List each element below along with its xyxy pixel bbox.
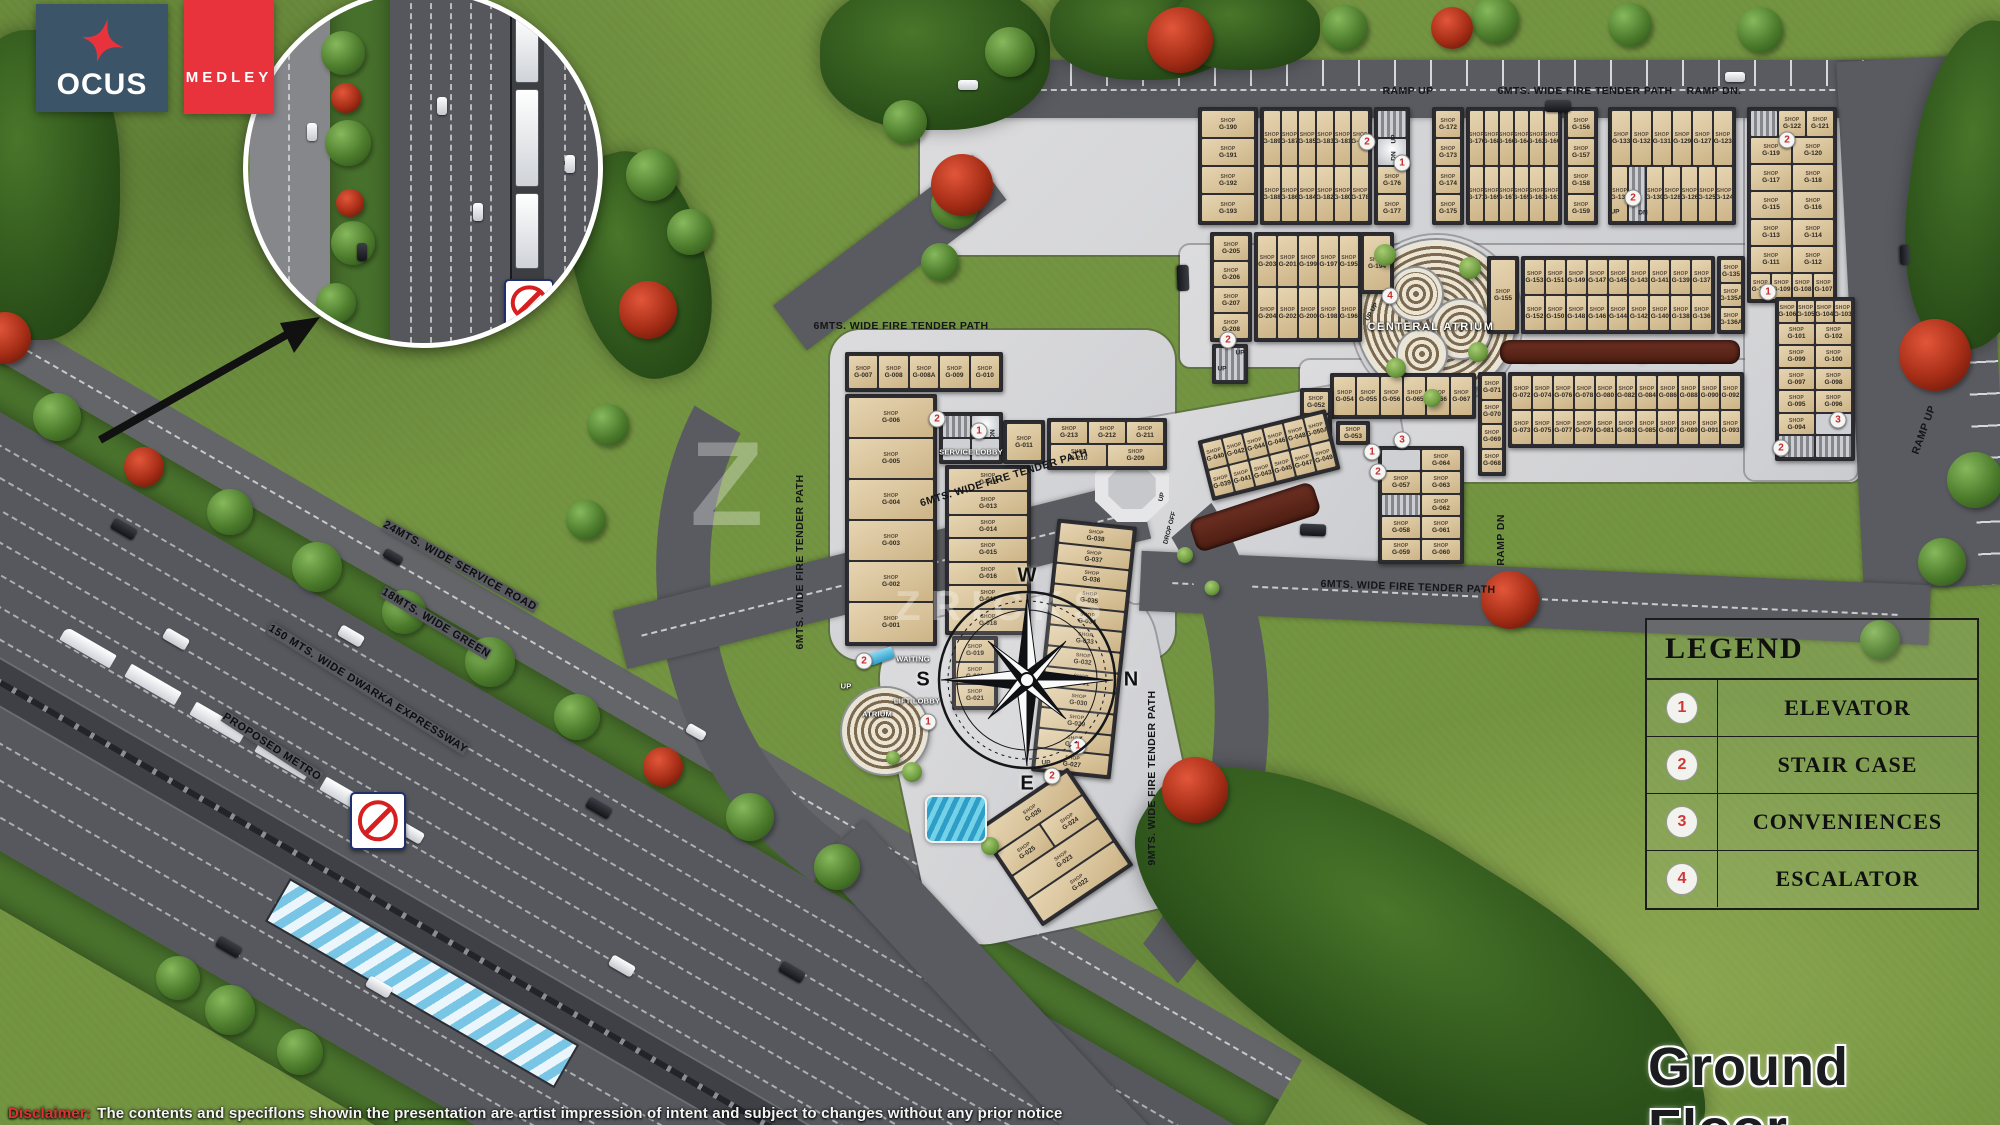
shop-g-187: SHOPG-187: [1282, 111, 1298, 165]
swimming-pool: [925, 795, 987, 843]
shop-g-132: SHOPG-132: [1632, 111, 1650, 165]
tree: [205, 985, 255, 1035]
shop-g-072: SHOPG-072: [1512, 376, 1531, 409]
marker-staircase: 2: [1779, 132, 1796, 149]
shop-g-069: SHOPG-069: [1482, 425, 1502, 448]
shop-g-206: SHOPG-206: [1214, 262, 1248, 286]
shop-block: SHOPG-190SHOPG-191SHOPG-192SHOPG-193: [1198, 107, 1258, 225]
shop-g-061: SHOPG-061: [1422, 517, 1460, 537]
tree: [1205, 581, 1220, 596]
shop-g-183: SHOPG-183: [1317, 111, 1333, 165]
shop-g-010: SHOPG-010: [971, 356, 999, 388]
tree: [566, 500, 606, 540]
shop-g-075: SHOPG-075: [1533, 411, 1552, 444]
shop-g-131: SHOPG-131: [1653, 111, 1671, 165]
shop-g-197: SHOPG-197: [1319, 236, 1337, 286]
shop-g-050a: SHOPG-050A: [1304, 414, 1329, 444]
shop-g-003: SHOPG-003: [849, 521, 933, 560]
shop-g-096: SHOPG-096: [1816, 391, 1851, 412]
label-centeral-atrium: CENTERAL ATRIUM: [1368, 321, 1495, 333]
label-up: UP: [1217, 366, 1226, 373]
compass-west: W: [1018, 565, 1037, 588]
shop-g-156: SHOPG-156: [1568, 111, 1594, 137]
compass-rose: W N E S: [917, 570, 1137, 790]
shop-g-123: SHOPG-123: [1714, 111, 1732, 165]
shop-g-070: SHOPG-070: [1482, 401, 1502, 424]
tree: [587, 404, 629, 446]
shop-g-098: SHOPG-098: [1816, 369, 1851, 390]
legend-label: CONVENIENCES: [1718, 794, 1977, 850]
flowering-tree: [1431, 7, 1473, 49]
label-6mts-wide-fire-tender-path: 6MTS. WIDE FIRE TENDER PATH: [814, 320, 989, 332]
inset-car: [307, 123, 317, 141]
label-atrium: ATRIUM: [862, 710, 892, 719]
tree: [1471, 0, 1519, 44]
shop-g-129: SHOPG-129: [1673, 111, 1691, 165]
shop-g-125: SHOPG-125: [1699, 167, 1714, 221]
tree: [726, 793, 774, 841]
shop-g-049: SHOPG-049: [1311, 441, 1336, 471]
label-dn: DN: [1638, 210, 1647, 217]
shop-g-108: SHOPG-108: [1793, 274, 1812, 299]
legend-title: LEGEND: [1647, 620, 1977, 680]
shop-g-212: SHOPG-212: [1089, 422, 1125, 443]
tree: [1177, 547, 1193, 563]
label-service-lobby: SERVICE LOBBY: [939, 448, 1003, 457]
shop-g-126: SHOPG-126: [1682, 167, 1697, 221]
shop-g-067: SHOPG-067: [1451, 377, 1472, 415]
shop-block: SHOPG-170SHOPG-168SHOPG-166SHOPG-164SHOP…: [1466, 107, 1562, 225]
shop-g-167: SHOPG-167: [1500, 167, 1513, 221]
marker-staircase: 2: [929, 411, 946, 428]
inset-tree: [331, 83, 361, 113]
shop-g-136a: SHOPG-136A: [1721, 308, 1741, 330]
flowering-tree: [931, 154, 993, 216]
car: [958, 80, 978, 90]
shop-g-009: SHOPG-009: [940, 356, 968, 388]
car: [1300, 524, 1326, 537]
tree: [985, 27, 1035, 77]
shop-g-186: SHOPG-186: [1282, 167, 1298, 221]
shop-g-185: SHOPG-185: [1299, 111, 1315, 165]
shop-g-136: SHOPG-136: [1692, 296, 1711, 330]
shop-g-076: SHOPG-076: [1554, 376, 1573, 409]
shop-g-082: SHOPG-082: [1617, 376, 1636, 409]
planter-court: [1500, 340, 1740, 364]
shop-g-053: SHOPG-053: [1340, 425, 1366, 441]
label-dn: DN: [990, 429, 997, 438]
tree: [1423, 389, 1441, 407]
shop-g-161: SHOPG-161: [1545, 167, 1558, 221]
compass-east: E: [1020, 773, 1033, 796]
legend-row-conveniences: 3CONVENIENCES: [1647, 794, 1977, 851]
shop-g-207: SHOPG-207: [1214, 288, 1248, 312]
disclaimer-text: The contents and speciflons showin the p…: [97, 1105, 1063, 1122]
shop-g-087: SHOPG-087: [1658, 411, 1677, 444]
shop-g-178: SHOPG-178: [1352, 167, 1368, 221]
shop-g-097: SHOPG-097: [1779, 369, 1814, 390]
shop-g-175: SHOPG-175: [1436, 195, 1460, 221]
shop-g-059: SHOPG-059: [1382, 540, 1420, 560]
shop-block: SHOPG-205SHOPG-206SHOPG-207SHOPG-208: [1210, 232, 1252, 342]
legend-label: ELEVATOR: [1718, 680, 1977, 736]
shop-block: SHOPG-153SHOPG-151SHOPG-149SHOPG-147SHOP…: [1521, 256, 1715, 334]
shop-g-081: SHOPG-081: [1596, 411, 1615, 444]
page-title: Ground Floor: [1648, 1036, 2000, 1125]
shop-g-116: SHOPG-116: [1793, 192, 1833, 217]
shop-g-138: SHOPG-138: [1671, 296, 1690, 330]
legend-marker-3: 3: [1666, 806, 1698, 838]
shop-g-198: SHOPG-198: [1319, 288, 1337, 338]
shop-g-102: SHOPG-102: [1816, 324, 1851, 345]
tree: [626, 149, 678, 201]
shop-g-139: SHOPG-139: [1671, 260, 1690, 294]
shop-g-152: SHOPG-152: [1525, 296, 1544, 330]
shop-g-056: SHOPG-056: [1381, 377, 1402, 415]
shop-g-114: SHOPG-114: [1793, 220, 1833, 245]
label-6mts-wide-fire-tender-path: 6MTS. WIDE FIRE TENDER PATH: [1498, 85, 1673, 97]
marker-conveniences: 3: [1394, 432, 1411, 449]
legend-label: STAIR CASE: [1718, 737, 1977, 793]
legend: LEGEND 1ELEVATOR2STAIR CASE3CONVENIENCES…: [1645, 618, 1979, 910]
shop-g-092: SHOPG-092: [1721, 376, 1740, 409]
metro-train: [515, 15, 539, 83]
marker-staircase: 2: [1370, 464, 1387, 481]
shop-g-120: SHOPG-120: [1793, 138, 1833, 163]
medley-wordmark: MEDLEY: [186, 69, 273, 86]
shop-g-071: SHOPG-071: [1482, 376, 1502, 399]
marker-elevator: 1: [1760, 284, 1777, 301]
shop-g-112: SHOPG-112: [1793, 247, 1833, 272]
shop-block: SHOPG-054SHOPG-055SHOPG-056SHOPG-065SHOP…: [1330, 373, 1476, 419]
shop-g-163: SHOPG-163: [1530, 167, 1543, 221]
tree: [1608, 3, 1652, 47]
shop-g-159: SHOPG-159: [1568, 195, 1594, 221]
staircase-cell: [1816, 436, 1851, 457]
label-6mts-wide-fire-tender-path: 6MTS. WIDE FIRE TENDER PATH: [794, 475, 806, 650]
staircase-cell: [1378, 111, 1406, 137]
tree: [156, 956, 200, 1000]
shop-g-196: SHOPG-196: [1340, 288, 1358, 338]
marker-elevator: 1: [1394, 155, 1411, 172]
shop-g-133: SHOPG-133: [1612, 111, 1630, 165]
shop-g-077: SHOPG-077: [1554, 411, 1573, 444]
ocus-logo: OCUS: [36, 4, 168, 112]
shop-g-008a: SHOPG-008A: [910, 356, 938, 388]
tree: [277, 1029, 323, 1075]
tree: [33, 393, 81, 441]
shop-g-074: SHOPG-074: [1533, 376, 1552, 409]
shop-g-174: SHOPG-174: [1436, 167, 1460, 193]
shop-g-007: SHOPG-007: [849, 356, 877, 388]
shop-g-090: SHOPG-090: [1700, 376, 1719, 409]
shop-g-085: SHOPG-085: [1637, 411, 1656, 444]
shop-g-150: SHOPG-150: [1546, 296, 1565, 330]
tree: [1322, 5, 1368, 51]
shop-block: SHOPG-106SHOPG-105SHOPG-104SHOPG-103SHOP…: [1775, 297, 1855, 461]
shop-g-060: SHOPG-060: [1422, 540, 1460, 560]
shop-g-190: SHOPG-190: [1202, 111, 1254, 137]
shop-g-145: SHOPG-145: [1609, 260, 1628, 294]
legend-marker-4: 4: [1666, 863, 1698, 895]
shop-g-005: SHOPG-005: [849, 439, 933, 478]
disclaimer-label: Disclaimer:: [8, 1105, 91, 1122]
label-9mts-wide-fire-tender-path: 9MTS. WIDE FIRE TENDER PATH: [1146, 691, 1158, 866]
ocus-wordmark: OCUS: [57, 68, 148, 102]
site-plan-poster: 150 MTS. WIDE DWARKA EXPRESSWAY OCUS MED…: [0, 0, 2000, 1125]
shop-g-121: SHOPG-121: [1807, 111, 1833, 136]
shop-g-147: SHOPG-147: [1588, 260, 1607, 294]
legend-marker-2: 2: [1666, 749, 1698, 781]
shop-block: SHOPG-203SHOPG-201SHOPG-199SHOPG-197SHOP…: [1254, 232, 1362, 342]
label-ramp-dn: RAMP DN.: [1687, 85, 1742, 97]
shop-g-171: SHOPG-171: [1470, 167, 1483, 221]
shop-g-111: SHOPG-111: [1751, 247, 1791, 272]
shop-g-153: SHOPG-153: [1525, 260, 1544, 294]
flowering-tree: [1899, 319, 1971, 391]
tree: [1386, 358, 1406, 378]
shop-g-155: SHOPG-155: [1491, 260, 1515, 330]
shop-g-211: SHOPG-211: [1127, 422, 1163, 443]
shop-block: SHOPG-007SHOPG-008SHOPG-008ASHOPG-009SHO…: [845, 352, 1003, 392]
shop-block: SHOPG-172SHOPG-173SHOPG-174SHOPG-175: [1432, 107, 1464, 225]
shop-g-103: SHOPG-103: [1835, 301, 1852, 322]
marker-staircase: 2: [1359, 134, 1376, 151]
label-up: UP: [841, 682, 852, 691]
shop-g-124: SHOPG-124: [1717, 167, 1732, 221]
tree: [1737, 7, 1783, 53]
tree: [921, 243, 959, 281]
flowering-tree: [1162, 757, 1228, 823]
shop-g-091: SHOPG-091: [1700, 411, 1719, 444]
shop-g-203: SHOPG-203: [1258, 236, 1276, 286]
flowering-tree: [1481, 571, 1539, 629]
flowering-tree: [619, 281, 677, 339]
inset-expressway-detail: 150 MTS. WIDE DWARKA EXPRESSWAY: [243, 0, 603, 348]
shop-g-089: SHOPG-089: [1679, 411, 1698, 444]
shop-g-213: SHOPG-213: [1051, 422, 1087, 443]
shop-g-006: SHOPG-006: [849, 398, 933, 437]
car: [1725, 72, 1745, 82]
shop-g-143: SHOPG-143: [1629, 260, 1648, 294]
shop-g-140: SHOPG-140: [1650, 296, 1669, 330]
tree: [886, 751, 900, 765]
shop-g-137: SHOPG-137: [1692, 260, 1711, 294]
shop-g-127: SHOPG-127: [1693, 111, 1711, 165]
shop-g-073: SHOPG-073: [1512, 411, 1531, 444]
shop-g-158: SHOPG-158: [1568, 167, 1594, 193]
tree: [1459, 257, 1481, 279]
utility-cell: [1382, 450, 1420, 470]
shop-g-095: SHOPG-095: [1779, 391, 1814, 412]
label-up: UP: [1235, 350, 1244, 357]
shop-g-144: SHOPG-144: [1609, 296, 1628, 330]
shop-block: SHOPG-189SHOPG-187SHOPG-185SHOPG-183SHOP…: [1260, 107, 1372, 225]
marker-staircase: 2: [1773, 440, 1790, 457]
shop-g-105: SHOPG-105: [1798, 301, 1815, 322]
marker-elevator: 1: [1364, 444, 1381, 461]
shop-g-118: SHOPG-118: [1793, 165, 1833, 190]
metro-train: [515, 89, 539, 187]
shop-block: SHOPG-071SHOPG-070SHOPG-069SHOPG-068: [1478, 372, 1506, 476]
ocus-star-icon: [76, 16, 128, 68]
label-ramp-up: RAMP UP: [1382, 85, 1433, 97]
shop-g-151: SHOPG-151: [1546, 260, 1565, 294]
legend-marker-1: 1: [1666, 692, 1698, 724]
shop-g-015: SHOPG-015: [949, 539, 1027, 560]
label-ramp-dn: RAMP DN: [1495, 514, 1507, 566]
car: [1900, 245, 1911, 265]
shop-g-064: SHOPG-064: [1422, 450, 1460, 470]
shop-g-173: SHOPG-173: [1436, 139, 1460, 165]
shop-g-142: SHOPG-142: [1629, 296, 1648, 330]
shop-g-160: SHOPG-160: [1545, 111, 1558, 165]
shop-g-204: SHOPG-204: [1258, 288, 1276, 338]
shop-g-084: SHOPG-084: [1637, 376, 1656, 409]
shop-g-135a: SHOPG-135A: [1721, 284, 1741, 306]
shop-g-180: SHOPG-180: [1335, 167, 1351, 221]
shop-g-200: SHOPG-200: [1299, 288, 1317, 338]
shop-g-014: SHOPG-014: [949, 516, 1027, 537]
metro-train: [515, 193, 539, 269]
shop-g-199: SHOPG-199: [1299, 236, 1317, 286]
car: [1177, 265, 1190, 291]
shop-g-011: SHOPG-011: [1007, 424, 1041, 460]
tree: [667, 209, 713, 255]
shop-g-164: SHOPG-164: [1515, 111, 1528, 165]
tree: [1947, 452, 2000, 508]
marker-staircase: 2: [856, 653, 873, 670]
shop-block: SHOPG-064SHOPG-057SHOPG-063SHOPG-062SHOP…: [1378, 446, 1464, 564]
shop-g-181: SHOPG-181: [1335, 111, 1351, 165]
compass-north: N: [1124, 669, 1138, 692]
medley-logo: MEDLEY: [184, 0, 274, 114]
shop-g-209: SHOPG-209: [1108, 445, 1163, 466]
shop-block: SHOPG-011: [1003, 420, 1045, 464]
shop-g-157: SHOPG-157: [1568, 139, 1594, 165]
inset-tree: [325, 120, 371, 166]
shop-g-057: SHOPG-057: [1382, 472, 1420, 492]
shop-g-117: SHOPG-117: [1751, 165, 1791, 190]
shop-g-113: SHOPG-113: [1751, 220, 1791, 245]
shop-g-195: SHOPG-195: [1340, 236, 1358, 286]
legend-row-escalator: 4ESCALATOR: [1647, 851, 1977, 907]
shop-g-054: SHOPG-054: [1334, 377, 1355, 415]
shop-g-141: SHOPG-141: [1650, 260, 1669, 294]
marker-staircase: 2: [1220, 332, 1237, 349]
legend-row-elevator: 1ELEVATOR: [1647, 680, 1977, 737]
shop-g-094: SHOPG-094: [1779, 414, 1814, 435]
shop-g-148: SHOPG-148: [1567, 296, 1586, 330]
shop-g-115: SHOPG-115: [1751, 192, 1791, 217]
inset-car: [437, 97, 447, 115]
inset-tree: [336, 189, 364, 217]
inset-car: [357, 243, 367, 261]
shop-g-188: SHOPG-188: [1264, 167, 1280, 221]
car: [1545, 100, 1571, 112]
shop-g-193: SHOPG-193: [1202, 195, 1254, 221]
shop-g-149: SHOPG-149: [1567, 260, 1586, 294]
shop-g-062: SHOPG-062: [1422, 495, 1460, 515]
flowering-tree: [1147, 7, 1213, 73]
shop-g-182: SHOPG-182: [1317, 167, 1333, 221]
shop-block: SHOPG-133SHOPG-132SHOPG-131SHOPG-129SHOP…: [1608, 107, 1736, 225]
marker-conveniences: 3: [1830, 412, 1847, 429]
inset-tree: [321, 31, 365, 75]
shop-g-169: SHOPG-169: [1485, 167, 1498, 221]
marker-staircase: 2: [1625, 190, 1642, 207]
shop-g-165: SHOPG-165: [1515, 167, 1528, 221]
shop-g-202: SHOPG-202: [1278, 288, 1296, 338]
shop-g-201: SHOPG-201: [1278, 236, 1296, 286]
label-up: UP: [1610, 209, 1619, 216]
inset-car: [473, 203, 483, 221]
shop-g-086: SHOPG-086: [1658, 376, 1677, 409]
inset-tree: [331, 221, 375, 265]
tree: [207, 489, 253, 535]
shop-g-191: SHOPG-191: [1202, 139, 1254, 165]
shop-g-192: SHOPG-192: [1202, 167, 1254, 193]
shop-g-088: SHOPG-088: [1679, 376, 1698, 409]
shop-g-008: SHOPG-008: [879, 356, 907, 388]
inset-metro-sign: [504, 279, 554, 327]
shop-g-100: SHOPG-100: [1816, 346, 1851, 367]
metro-logo-sign: [350, 792, 406, 850]
shop-g-189: SHOPG-189: [1264, 111, 1280, 165]
legend-label: ESCALATOR: [1718, 851, 1977, 907]
inset-car: [305, 305, 315, 323]
flowering-tree: [643, 747, 683, 787]
disclaimer: Disclaimer:The contents and speciflons s…: [8, 1105, 1063, 1122]
legend-row-stair-case: 2STAIR CASE: [1647, 737, 1977, 794]
shop-g-170: SHOPG-170: [1470, 111, 1483, 165]
inset-car: [565, 155, 575, 173]
shop-g-146: SHOPG-146: [1588, 296, 1607, 330]
tree: [292, 542, 342, 592]
staircase-cell: [943, 416, 970, 437]
shop-g-080: SHOPG-080: [1596, 376, 1615, 409]
shop-g-079: SHOPG-079: [1575, 411, 1594, 444]
shop-g-107: SHOPG-107: [1814, 274, 1833, 299]
shop-g-135: SHOPG-135: [1721, 260, 1741, 282]
tree: [1918, 538, 1966, 586]
shop-g-104: SHOPG-104: [1816, 301, 1833, 322]
shop-g-168: SHOPG-168: [1485, 111, 1498, 165]
shop-g-068: SHOPG-068: [1482, 450, 1502, 473]
shop-g-177: SHOPG-177: [1378, 195, 1406, 221]
label-up: UP: [1391, 134, 1398, 143]
shop-g-058: SHOPG-058: [1382, 517, 1420, 537]
shop-block: SHOPG-135SHOPG-135ASHOPG-136A: [1717, 256, 1745, 334]
shop-g-055: SHOPG-055: [1357, 377, 1378, 415]
shop-block: SHOPG-072SHOPG-074SHOPG-076SHOPG-078SHOP…: [1508, 372, 1744, 448]
shop-g-063: SHOPG-063: [1422, 472, 1460, 492]
shop-g-205: SHOPG-205: [1214, 236, 1248, 260]
shop-g-172: SHOPG-172: [1436, 111, 1460, 137]
compass-south: S: [916, 669, 929, 692]
marker-elevator: 1: [971, 423, 988, 440]
staircase-cell: [1751, 111, 1777, 136]
shop-g-130: SHOPG-130: [1647, 167, 1662, 221]
inset-tree: [316, 283, 356, 323]
shop-g-083: SHOPG-083: [1617, 411, 1636, 444]
shop-g-101: SHOPG-101: [1779, 324, 1814, 345]
shop-g-078: SHOPG-078: [1575, 376, 1594, 409]
shop-g-128: SHOPG-128: [1664, 167, 1679, 221]
shop-block: SHOPG-053: [1336, 421, 1370, 445]
shop-g-162: SHOPG-162: [1530, 111, 1543, 165]
tree: [1468, 342, 1488, 362]
